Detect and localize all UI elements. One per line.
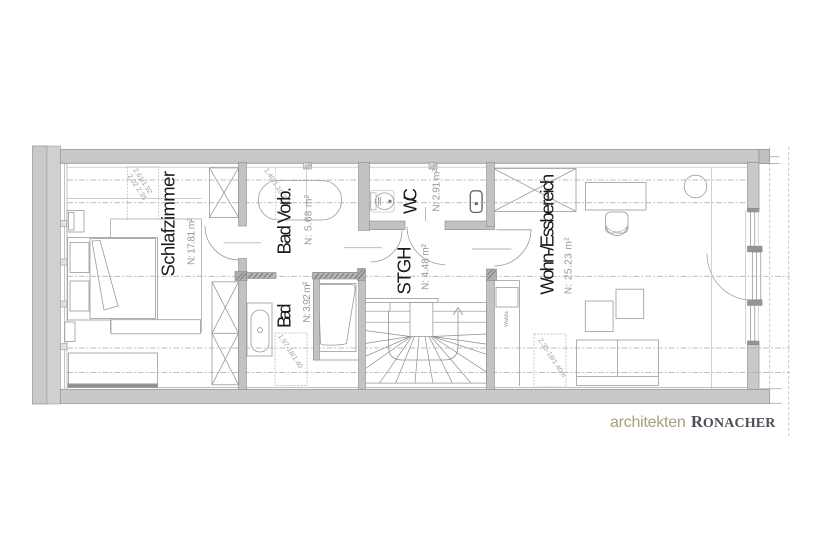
svg-text:Bad: Bad bbox=[274, 304, 295, 329]
svg-text:Bad Vorb.: Bad Vorb. bbox=[274, 187, 295, 255]
svg-text:N: 25.23 m²: N: 25.23 m² bbox=[564, 237, 575, 295]
svg-text:STGH: STGH bbox=[394, 247, 415, 295]
svg-text:Schlafzimmer: Schlafzimmer bbox=[158, 171, 179, 277]
svg-text:N: 4.48 m²: N: 4.48 m² bbox=[421, 243, 432, 290]
svg-text:N: 5.68 m²: N: 5.68 m² bbox=[304, 194, 315, 245]
svg-text:N: 3.92 m²: N: 3.92 m² bbox=[302, 281, 313, 323]
svg-text:WaMa: WaMa bbox=[504, 310, 510, 327]
svg-text:N: 17.81 m²: N: 17.81 m² bbox=[187, 217, 198, 265]
svg-text:Wohn-/Essbereich: Wohn-/Essbereich bbox=[537, 174, 558, 295]
svg-text:N: 2.91 m²: N: 2.91 m² bbox=[432, 168, 443, 212]
svg-text:WC: WC bbox=[400, 188, 421, 214]
svg-text:architekten: architekten bbox=[610, 414, 686, 431]
